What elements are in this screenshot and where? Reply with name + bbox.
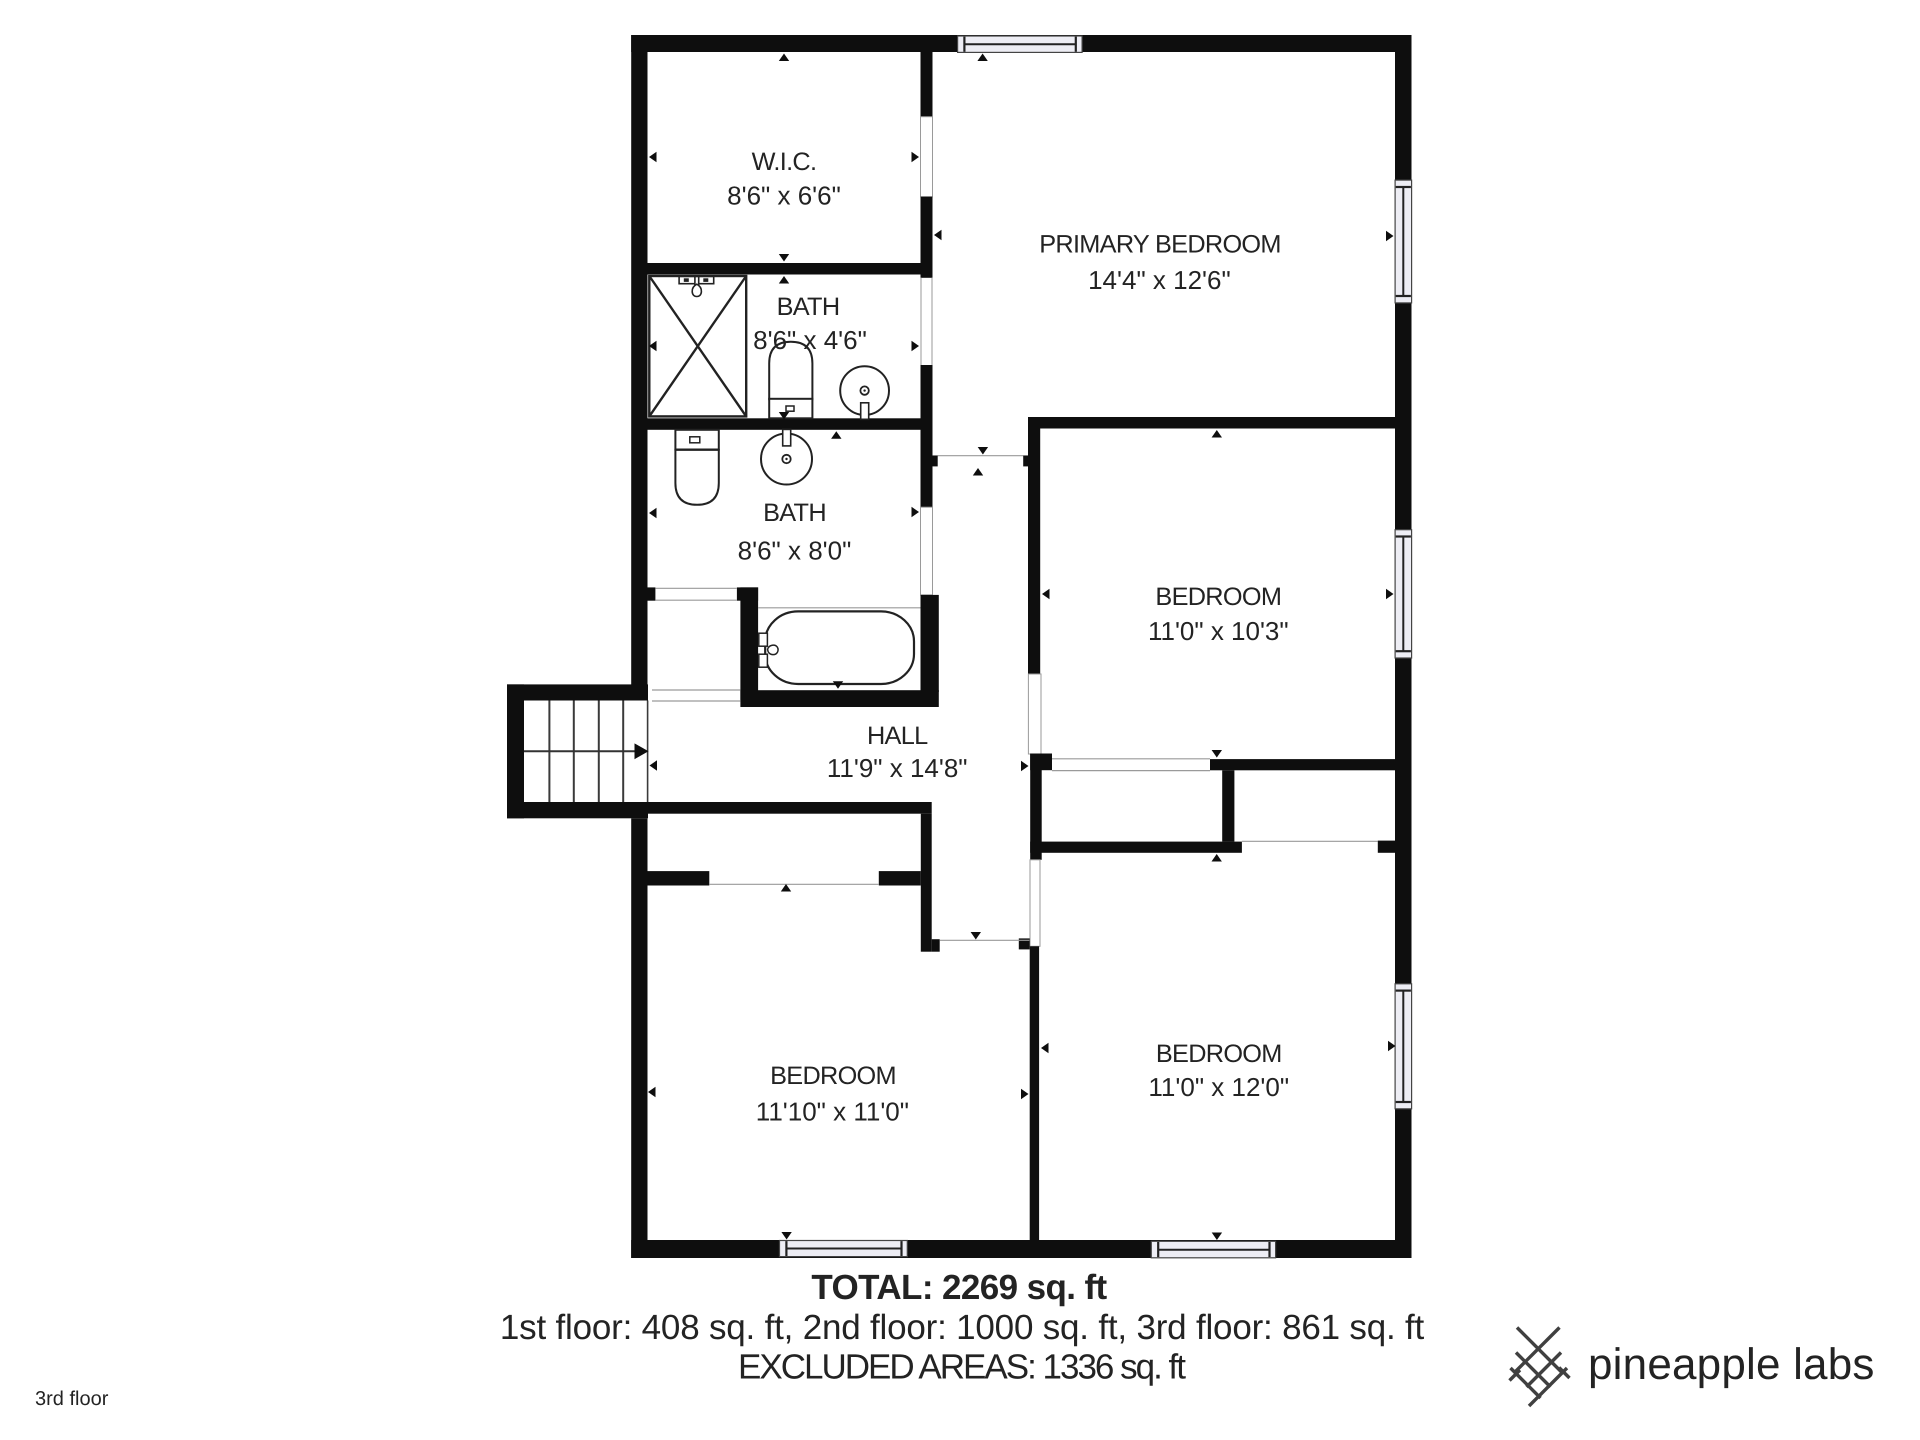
svg-text:11'0" x 10'3": 11'0" x 10'3" xyxy=(1148,616,1289,646)
svg-text:BEDROOM: BEDROOM xyxy=(770,1062,896,1090)
svg-text:8'6" x 6'6": 8'6" x 6'6" xyxy=(727,181,841,211)
svg-text:BEDROOM: BEDROOM xyxy=(1155,583,1281,611)
svg-text:14'4" x 12'6": 14'4" x 12'6" xyxy=(1088,265,1231,295)
svg-text:BATH: BATH xyxy=(763,499,826,527)
svg-text:3rd floor: 3rd floor xyxy=(35,1388,109,1410)
svg-text:HALL: HALL xyxy=(867,722,928,750)
svg-text:W.I.C.: W.I.C. xyxy=(752,148,817,176)
svg-text:BATH: BATH xyxy=(777,293,840,321)
svg-text:BEDROOM: BEDROOM xyxy=(1156,1040,1282,1068)
svg-text:PRIMARY BEDROOM: PRIMARY BEDROOM xyxy=(1039,230,1281,258)
svg-text:8'6" x 4'6": 8'6" x 4'6" xyxy=(753,325,867,355)
svg-text:1st floor: 408 sq. ft, 2nd flo: 1st floor: 408 sq. ft, 2nd floor: 1000 s… xyxy=(500,1308,1425,1347)
svg-text:11'0" x 12'0": 11'0" x 12'0" xyxy=(1148,1072,1289,1102)
svg-text:pineapple labs: pineapple labs xyxy=(1588,1340,1875,1389)
svg-text:8'6" x 8'0": 8'6" x 8'0" xyxy=(738,536,852,566)
svg-text:11'9" x 14'8": 11'9" x 14'8" xyxy=(827,753,968,783)
svg-text:11'10" x 11'0": 11'10" x 11'0" xyxy=(756,1096,909,1126)
svg-text:EXCLUDED AREAS: 1336 sq. ft: EXCLUDED AREAS: 1336 sq. ft xyxy=(738,1348,1186,1387)
svg-text:TOTAL: 2269 sq. ft: TOTAL: 2269 sq. ft xyxy=(811,1268,1107,1307)
